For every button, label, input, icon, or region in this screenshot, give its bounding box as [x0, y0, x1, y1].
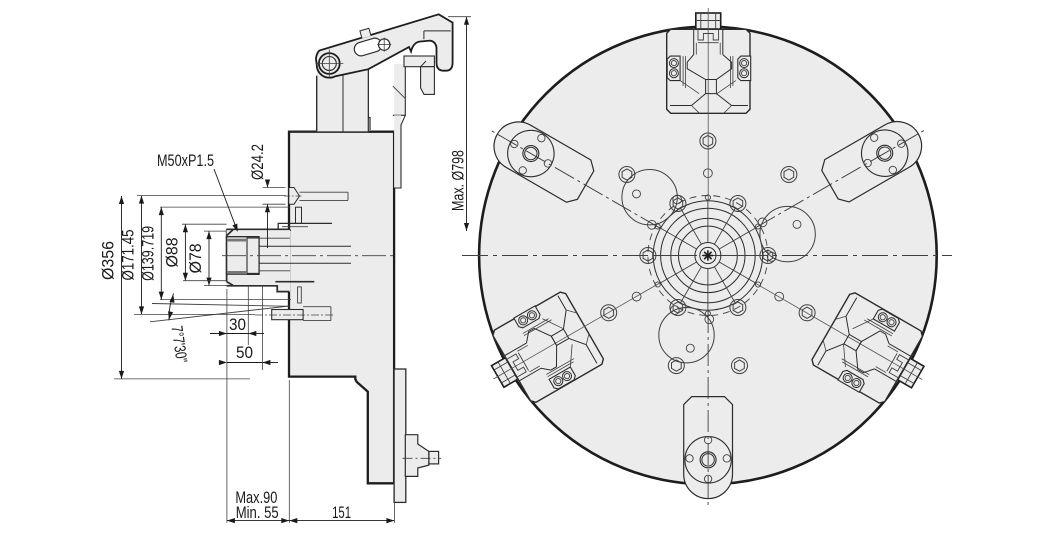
svg-text:Ø78: Ø78: [186, 243, 205, 273]
svg-text:151: 151: [332, 503, 351, 522]
svg-text:Min. 55: Min. 55: [236, 503, 279, 522]
svg-text:Ø24.2: Ø24.2: [248, 144, 267, 180]
svg-text:Ø88: Ø88: [162, 237, 181, 267]
svg-text:Ø356: Ø356: [99, 241, 118, 280]
svg-text:Ø139.719: Ø139.719: [138, 226, 157, 281]
svg-text:Max. Ø798: Max. Ø798: [449, 150, 468, 211]
svg-text:Ø171.45: Ø171.45: [119, 230, 138, 281]
svg-text:M50xP1.5: M50xP1.5: [157, 151, 214, 170]
svg-text:50: 50: [236, 343, 253, 362]
svg-text:30: 30: [229, 315, 246, 334]
